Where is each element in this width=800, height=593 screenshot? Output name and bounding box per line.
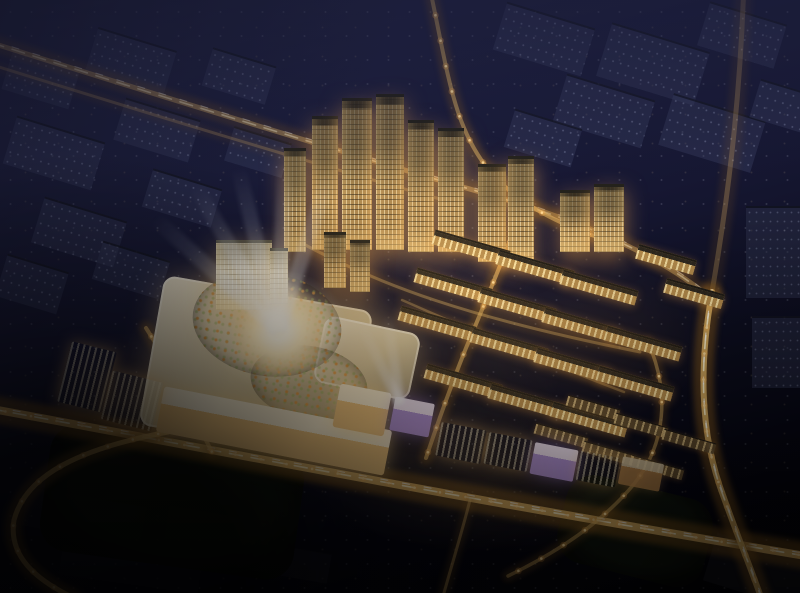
street-lamp-glow bbox=[80, 452, 87, 459]
estate-cross-south bbox=[402, 300, 624, 392]
west-strip-glow bbox=[36, 326, 206, 476]
street-lamp bbox=[175, 381, 178, 384]
street-lamp-glow bbox=[693, 534, 700, 541]
street-lamp bbox=[540, 557, 543, 560]
street-lamp bbox=[622, 494, 625, 497]
street-lamp-glow bbox=[744, 543, 751, 550]
night-haze-top bbox=[0, 0, 800, 593]
street-lamp-glow bbox=[565, 512, 572, 519]
roof-garden-ring bbox=[184, 260, 350, 388]
street-lamp-glow bbox=[451, 375, 458, 382]
street-lamp bbox=[492, 281, 495, 284]
villa bbox=[566, 395, 621, 420]
street-lamp bbox=[588, 233, 591, 236]
dim bbox=[697, 1, 787, 68]
street-lamp bbox=[106, 429, 109, 432]
street-lamp bbox=[260, 458, 263, 461]
dim bbox=[85, 27, 177, 95]
row bbox=[595, 366, 674, 402]
row bbox=[469, 328, 548, 364]
street-lamp bbox=[439, 39, 442, 42]
dim-slab bbox=[746, 206, 800, 298]
estate-east-loop bbox=[508, 342, 665, 576]
street-lamp bbox=[209, 448, 212, 451]
dim bbox=[749, 79, 800, 134]
street-lamp-glow bbox=[148, 333, 155, 340]
street-lamp-glow bbox=[51, 584, 58, 591]
street-lamp bbox=[12, 524, 15, 527]
street-lamp-glow bbox=[161, 355, 168, 362]
street-lamp-glow bbox=[425, 449, 432, 456]
street-lamp bbox=[541, 211, 544, 214]
street-lamp-glow bbox=[620, 492, 627, 499]
street-lamp-glow bbox=[104, 427, 111, 434]
street-lamp-glow bbox=[724, 503, 731, 510]
street-lamp-glow bbox=[173, 378, 180, 385]
row bbox=[397, 306, 476, 342]
night-aerial-city-rendering bbox=[0, 0, 800, 593]
street-lamp bbox=[285, 463, 288, 466]
street-lamp bbox=[482, 305, 485, 308]
street-lamp-glow bbox=[466, 137, 473, 144]
street-lamp bbox=[564, 223, 567, 226]
street-lamp bbox=[453, 377, 456, 380]
scattered-window-lights bbox=[0, 0, 800, 593]
street-lamp-glow bbox=[770, 547, 777, 554]
park bbox=[551, 469, 718, 593]
estate-warm-glow bbox=[420, 228, 730, 448]
street-lamp-glow bbox=[437, 489, 444, 496]
street-lamp bbox=[709, 301, 712, 304]
row bbox=[487, 384, 566, 420]
street-lamp-glow bbox=[718, 538, 725, 545]
north-entry-road bbox=[427, 0, 600, 238]
street-lamp bbox=[32, 570, 35, 573]
row bbox=[495, 250, 574, 286]
dim bbox=[202, 47, 277, 105]
com-warm bbox=[483, 432, 532, 472]
dim-dark bbox=[703, 532, 800, 593]
mall-main-roof bbox=[138, 275, 373, 462]
dim-dark bbox=[21, 486, 146, 546]
street-lamp bbox=[451, 90, 454, 93]
street-lamp bbox=[735, 530, 738, 533]
street-lamp bbox=[651, 452, 654, 455]
dim bbox=[504, 109, 583, 168]
street-lamp bbox=[515, 505, 518, 508]
street-lamp-glow bbox=[449, 88, 456, 95]
street-lamp-glow bbox=[411, 484, 418, 491]
street-lamp bbox=[458, 115, 461, 118]
estate-spine-road bbox=[425, 200, 525, 458]
street-lamp bbox=[439, 491, 442, 494]
street-lamp bbox=[519, 197, 522, 200]
dim bbox=[596, 22, 710, 105]
street-lamp bbox=[703, 404, 706, 407]
tower bbox=[376, 94, 404, 250]
street-lamp-glow bbox=[155, 437, 162, 444]
street-lamp bbox=[753, 578, 756, 581]
park bbox=[36, 421, 307, 583]
road-network bbox=[0, 0, 800, 593]
dim-dark bbox=[59, 544, 202, 593]
center-warm-glow bbox=[110, 200, 580, 510]
street-lamp-glow bbox=[460, 351, 467, 358]
street-lamp-glow bbox=[456, 113, 463, 120]
street-lamp bbox=[157, 433, 160, 436]
com-warm bbox=[101, 370, 164, 431]
street-lamp bbox=[183, 444, 186, 447]
row bbox=[533, 348, 612, 384]
tower-bright bbox=[216, 240, 272, 310]
street-lamp-glow bbox=[562, 221, 569, 228]
mall-west-street bbox=[146, 328, 215, 455]
villa bbox=[614, 413, 669, 438]
street-lamp bbox=[234, 453, 237, 456]
street-lamp bbox=[519, 208, 522, 211]
street-lamp bbox=[53, 586, 56, 589]
shopping-mall-complex bbox=[0, 0, 800, 593]
com-purple bbox=[529, 442, 578, 482]
street-lamp bbox=[797, 553, 800, 556]
street-lamp-glow bbox=[649, 449, 656, 456]
dim bbox=[658, 93, 766, 173]
surrounding-city-blocks bbox=[0, 0, 800, 593]
street-lamp bbox=[157, 439, 160, 442]
street-lamp bbox=[106, 445, 109, 448]
street-warm-glow bbox=[290, 382, 690, 562]
street-lamp bbox=[746, 545, 749, 548]
row bbox=[413, 268, 492, 304]
row bbox=[477, 288, 556, 324]
street-lamp bbox=[55, 420, 58, 423]
plaza-searchlights bbox=[228, 155, 286, 331]
street-lamp bbox=[444, 402, 447, 405]
street-lamp bbox=[187, 404, 190, 407]
street-lamp-glow bbox=[648, 348, 655, 355]
street-lamp bbox=[387, 482, 390, 485]
street-lamp bbox=[445, 65, 448, 68]
tower bbox=[594, 184, 624, 252]
street-lamp-glow bbox=[538, 555, 545, 562]
street-lamp-glow bbox=[742, 552, 749, 559]
street-lamp bbox=[468, 139, 471, 142]
street-lamp-glow bbox=[57, 463, 64, 470]
night-haze-left bbox=[0, 0, 800, 593]
north-towers-glow bbox=[290, 120, 580, 300]
street-lamp bbox=[311, 468, 314, 471]
street-lamp bbox=[650, 350, 653, 353]
street-lamp bbox=[81, 424, 84, 427]
street-lamp bbox=[499, 181, 502, 184]
tower bbox=[560, 190, 590, 252]
tower bbox=[312, 116, 338, 250]
street-lamp-glow bbox=[497, 179, 504, 186]
street-lamp bbox=[17, 550, 20, 553]
street-lamp bbox=[462, 353, 465, 356]
light-glow-overlays bbox=[0, 0, 800, 593]
street-lamp-glow bbox=[517, 195, 524, 202]
street-lamp bbox=[705, 326, 708, 329]
searchlight-beams bbox=[0, 0, 800, 593]
street-lamp bbox=[59, 465, 62, 468]
dim bbox=[493, 2, 596, 77]
tower bbox=[324, 232, 346, 288]
street-lamp bbox=[511, 233, 514, 236]
street-lamp bbox=[592, 518, 595, 521]
street-lamp-glow bbox=[480, 303, 487, 310]
street-lamp-glow bbox=[442, 400, 449, 407]
street-lamp-glow bbox=[14, 548, 21, 555]
street-lamp-glow bbox=[432, 12, 439, 19]
street-lamp bbox=[464, 496, 467, 499]
street-lamp bbox=[706, 430, 709, 433]
street-lamp bbox=[82, 454, 85, 457]
street-searchlights bbox=[382, 308, 405, 404]
dim-slab bbox=[752, 316, 800, 388]
tower bbox=[508, 156, 534, 262]
street-lamp-glow bbox=[707, 298, 714, 305]
street-lamp bbox=[658, 427, 661, 430]
plaza-searchlights bbox=[141, 205, 283, 335]
street-lamp-glow bbox=[513, 503, 520, 510]
street-lamp-glow bbox=[258, 456, 265, 463]
tower bbox=[478, 164, 506, 262]
street-lamp-glow bbox=[581, 527, 588, 534]
row bbox=[549, 402, 628, 438]
west-loop-road bbox=[10, 430, 168, 593]
mall-east-wing bbox=[312, 315, 422, 402]
street-lamp bbox=[163, 358, 166, 361]
street-plaza-building bbox=[332, 383, 391, 436]
street-lamp bbox=[435, 426, 438, 429]
street-lamp-glow bbox=[488, 498, 495, 505]
street-lamp-glow bbox=[208, 448, 215, 455]
street-lamp bbox=[695, 536, 698, 539]
mall-south-frontage bbox=[156, 386, 393, 475]
street-lamp-glow bbox=[155, 430, 162, 437]
street-lamp bbox=[199, 427, 202, 430]
street-lamp bbox=[604, 513, 607, 516]
street-lamp-glow bbox=[385, 480, 392, 487]
street-lamp-glow bbox=[185, 402, 192, 409]
street-lamp-glow bbox=[129, 436, 136, 443]
street-lamp bbox=[669, 532, 672, 535]
street-lamp bbox=[210, 450, 213, 453]
street-lamp-glow bbox=[206, 446, 213, 453]
street-lamp-glow bbox=[442, 63, 449, 70]
street-lamp bbox=[710, 456, 713, 459]
row bbox=[541, 308, 620, 344]
street-lamp-glow bbox=[667, 530, 674, 537]
street-lamp-glow bbox=[586, 231, 593, 238]
street-lamp-glow bbox=[30, 568, 37, 575]
street-lamp-glow bbox=[309, 465, 316, 472]
dim bbox=[92, 241, 171, 300]
dark-vignette bbox=[0, 0, 800, 593]
plaza-searchlights bbox=[183, 172, 285, 334]
street-lamp-glow bbox=[433, 424, 440, 431]
street-lamp-glow bbox=[733, 527, 740, 534]
com-warm bbox=[576, 450, 621, 487]
dim bbox=[31, 196, 127, 267]
dim bbox=[224, 126, 292, 178]
street-lamp bbox=[643, 527, 646, 530]
com-purple bbox=[389, 396, 435, 437]
street-lamp bbox=[639, 474, 642, 477]
street-lamp bbox=[150, 335, 153, 338]
south-branch bbox=[442, 500, 470, 593]
street-lamp bbox=[726, 505, 729, 508]
street-lamp-glow bbox=[515, 567, 522, 574]
plaza-searchlights bbox=[271, 152, 292, 330]
street-lamp bbox=[132, 434, 135, 437]
street-lamp bbox=[490, 500, 493, 503]
street-lamp-glow bbox=[470, 327, 477, 334]
street-lamp-glow bbox=[334, 470, 341, 477]
street-lamp-glow bbox=[10, 522, 17, 529]
street-lamp-glow bbox=[539, 209, 546, 216]
plaza-searchlights bbox=[271, 158, 340, 332]
street-lamp-glow bbox=[795, 551, 800, 558]
estate-cross-north bbox=[296, 240, 640, 352]
street-lamp-glow bbox=[283, 461, 290, 468]
street-lamp bbox=[744, 554, 747, 557]
street-lamp-glow bbox=[701, 350, 708, 357]
street-lamp-glow bbox=[232, 451, 239, 458]
street-lamp bbox=[720, 541, 723, 544]
dim bbox=[0, 254, 69, 315]
dim-dark bbox=[164, 505, 273, 559]
street-lamp-glow bbox=[703, 324, 710, 331]
street-lamp-glow bbox=[590, 516, 597, 523]
villa bbox=[534, 423, 589, 448]
street-lamp bbox=[658, 375, 661, 378]
street-lamp-glow bbox=[656, 425, 663, 432]
plaza-white-glow bbox=[203, 265, 353, 395]
tower bbox=[342, 98, 372, 250]
north-arterial-2 bbox=[0, 58, 458, 204]
street-lamp-glow bbox=[509, 231, 516, 238]
tower bbox=[408, 120, 434, 252]
street-lamp-glow bbox=[104, 443, 111, 450]
dim bbox=[553, 74, 656, 149]
row bbox=[423, 364, 502, 400]
roof-garden-south bbox=[244, 336, 373, 429]
tower bbox=[284, 148, 306, 252]
street-lamp bbox=[362, 477, 365, 480]
street-lamp-glow bbox=[637, 472, 644, 479]
street-lamp bbox=[132, 438, 135, 441]
street-lamp-glow bbox=[700, 376, 707, 383]
street-lamp-glow bbox=[658, 399, 665, 406]
right-highway-upper bbox=[712, 0, 744, 292]
street-lamp bbox=[4, 410, 7, 413]
street-lamp bbox=[567, 514, 570, 517]
street-lamp-glow bbox=[490, 279, 497, 286]
street-lamp-glow bbox=[19, 498, 26, 505]
central-plaza bbox=[228, 280, 328, 380]
street-lamp bbox=[482, 161, 485, 164]
north-arterial bbox=[0, 34, 708, 297]
row bbox=[431, 230, 510, 266]
dim bbox=[142, 168, 223, 227]
street-lamp bbox=[472, 329, 475, 332]
development-buildings bbox=[0, 0, 800, 593]
street-lamp bbox=[562, 544, 565, 547]
street-lamp-glow bbox=[641, 525, 648, 532]
dim bbox=[113, 98, 200, 163]
dim-dark bbox=[236, 538, 332, 584]
street-lamp bbox=[502, 257, 505, 260]
street-lamp-glow bbox=[539, 507, 546, 514]
street-lamp-glow bbox=[751, 576, 758, 583]
street-lamp-glow bbox=[35, 478, 42, 485]
street-lamp-glow bbox=[499, 255, 506, 262]
street-lamp-glow bbox=[130, 432, 137, 439]
villa bbox=[630, 455, 685, 480]
street-lamp-glow bbox=[616, 521, 623, 528]
street-lamp-glow bbox=[704, 428, 711, 435]
street-lamp bbox=[618, 523, 621, 526]
street-lamp-glow bbox=[708, 453, 715, 460]
dim bbox=[3, 116, 106, 191]
street-lamp bbox=[541, 509, 544, 512]
tower-bright bbox=[270, 248, 288, 304]
street-lamp bbox=[517, 570, 520, 573]
row bbox=[559, 270, 638, 306]
street-lamp bbox=[703, 352, 706, 355]
street-lamp-glow bbox=[2, 408, 9, 415]
street-lamp-glow bbox=[53, 418, 60, 425]
tower bbox=[350, 240, 370, 292]
street-lamp-glow bbox=[28, 413, 35, 420]
street-lamp-glow bbox=[79, 422, 86, 429]
street-lamp-glow bbox=[560, 542, 567, 549]
street-lamp bbox=[21, 500, 24, 503]
right-highway bbox=[700, 290, 762, 593]
street-lamp-glow bbox=[701, 402, 708, 409]
street-lamp bbox=[336, 472, 339, 475]
row bbox=[603, 326, 682, 362]
street-searchlights bbox=[353, 316, 404, 407]
row bbox=[663, 278, 725, 309]
dim bbox=[1, 49, 80, 110]
street-lamp-glow bbox=[181, 442, 188, 449]
street-lamp-glow bbox=[602, 510, 609, 517]
com-warm bbox=[435, 422, 487, 464]
tower bbox=[438, 128, 464, 252]
street-lamp bbox=[413, 486, 416, 489]
street-lamp-glow bbox=[656, 373, 663, 380]
row bbox=[635, 244, 697, 275]
street-lamp bbox=[772, 549, 775, 552]
street-lamp bbox=[584, 529, 587, 532]
com-warm-dim bbox=[618, 456, 665, 491]
street-lamp-glow bbox=[437, 37, 444, 44]
street-lamp-glow bbox=[462, 494, 469, 501]
street-lamp-glow bbox=[360, 475, 367, 482]
com-warm bbox=[57, 341, 117, 412]
street-lamp bbox=[37, 480, 40, 483]
street-lamp bbox=[660, 401, 663, 404]
street-lamp-glow bbox=[197, 425, 204, 432]
street-lamp-glow bbox=[480, 159, 487, 166]
villa bbox=[582, 441, 637, 466]
main-avenue bbox=[0, 403, 800, 563]
street-lamp bbox=[434, 14, 437, 17]
villa bbox=[662, 429, 717, 454]
